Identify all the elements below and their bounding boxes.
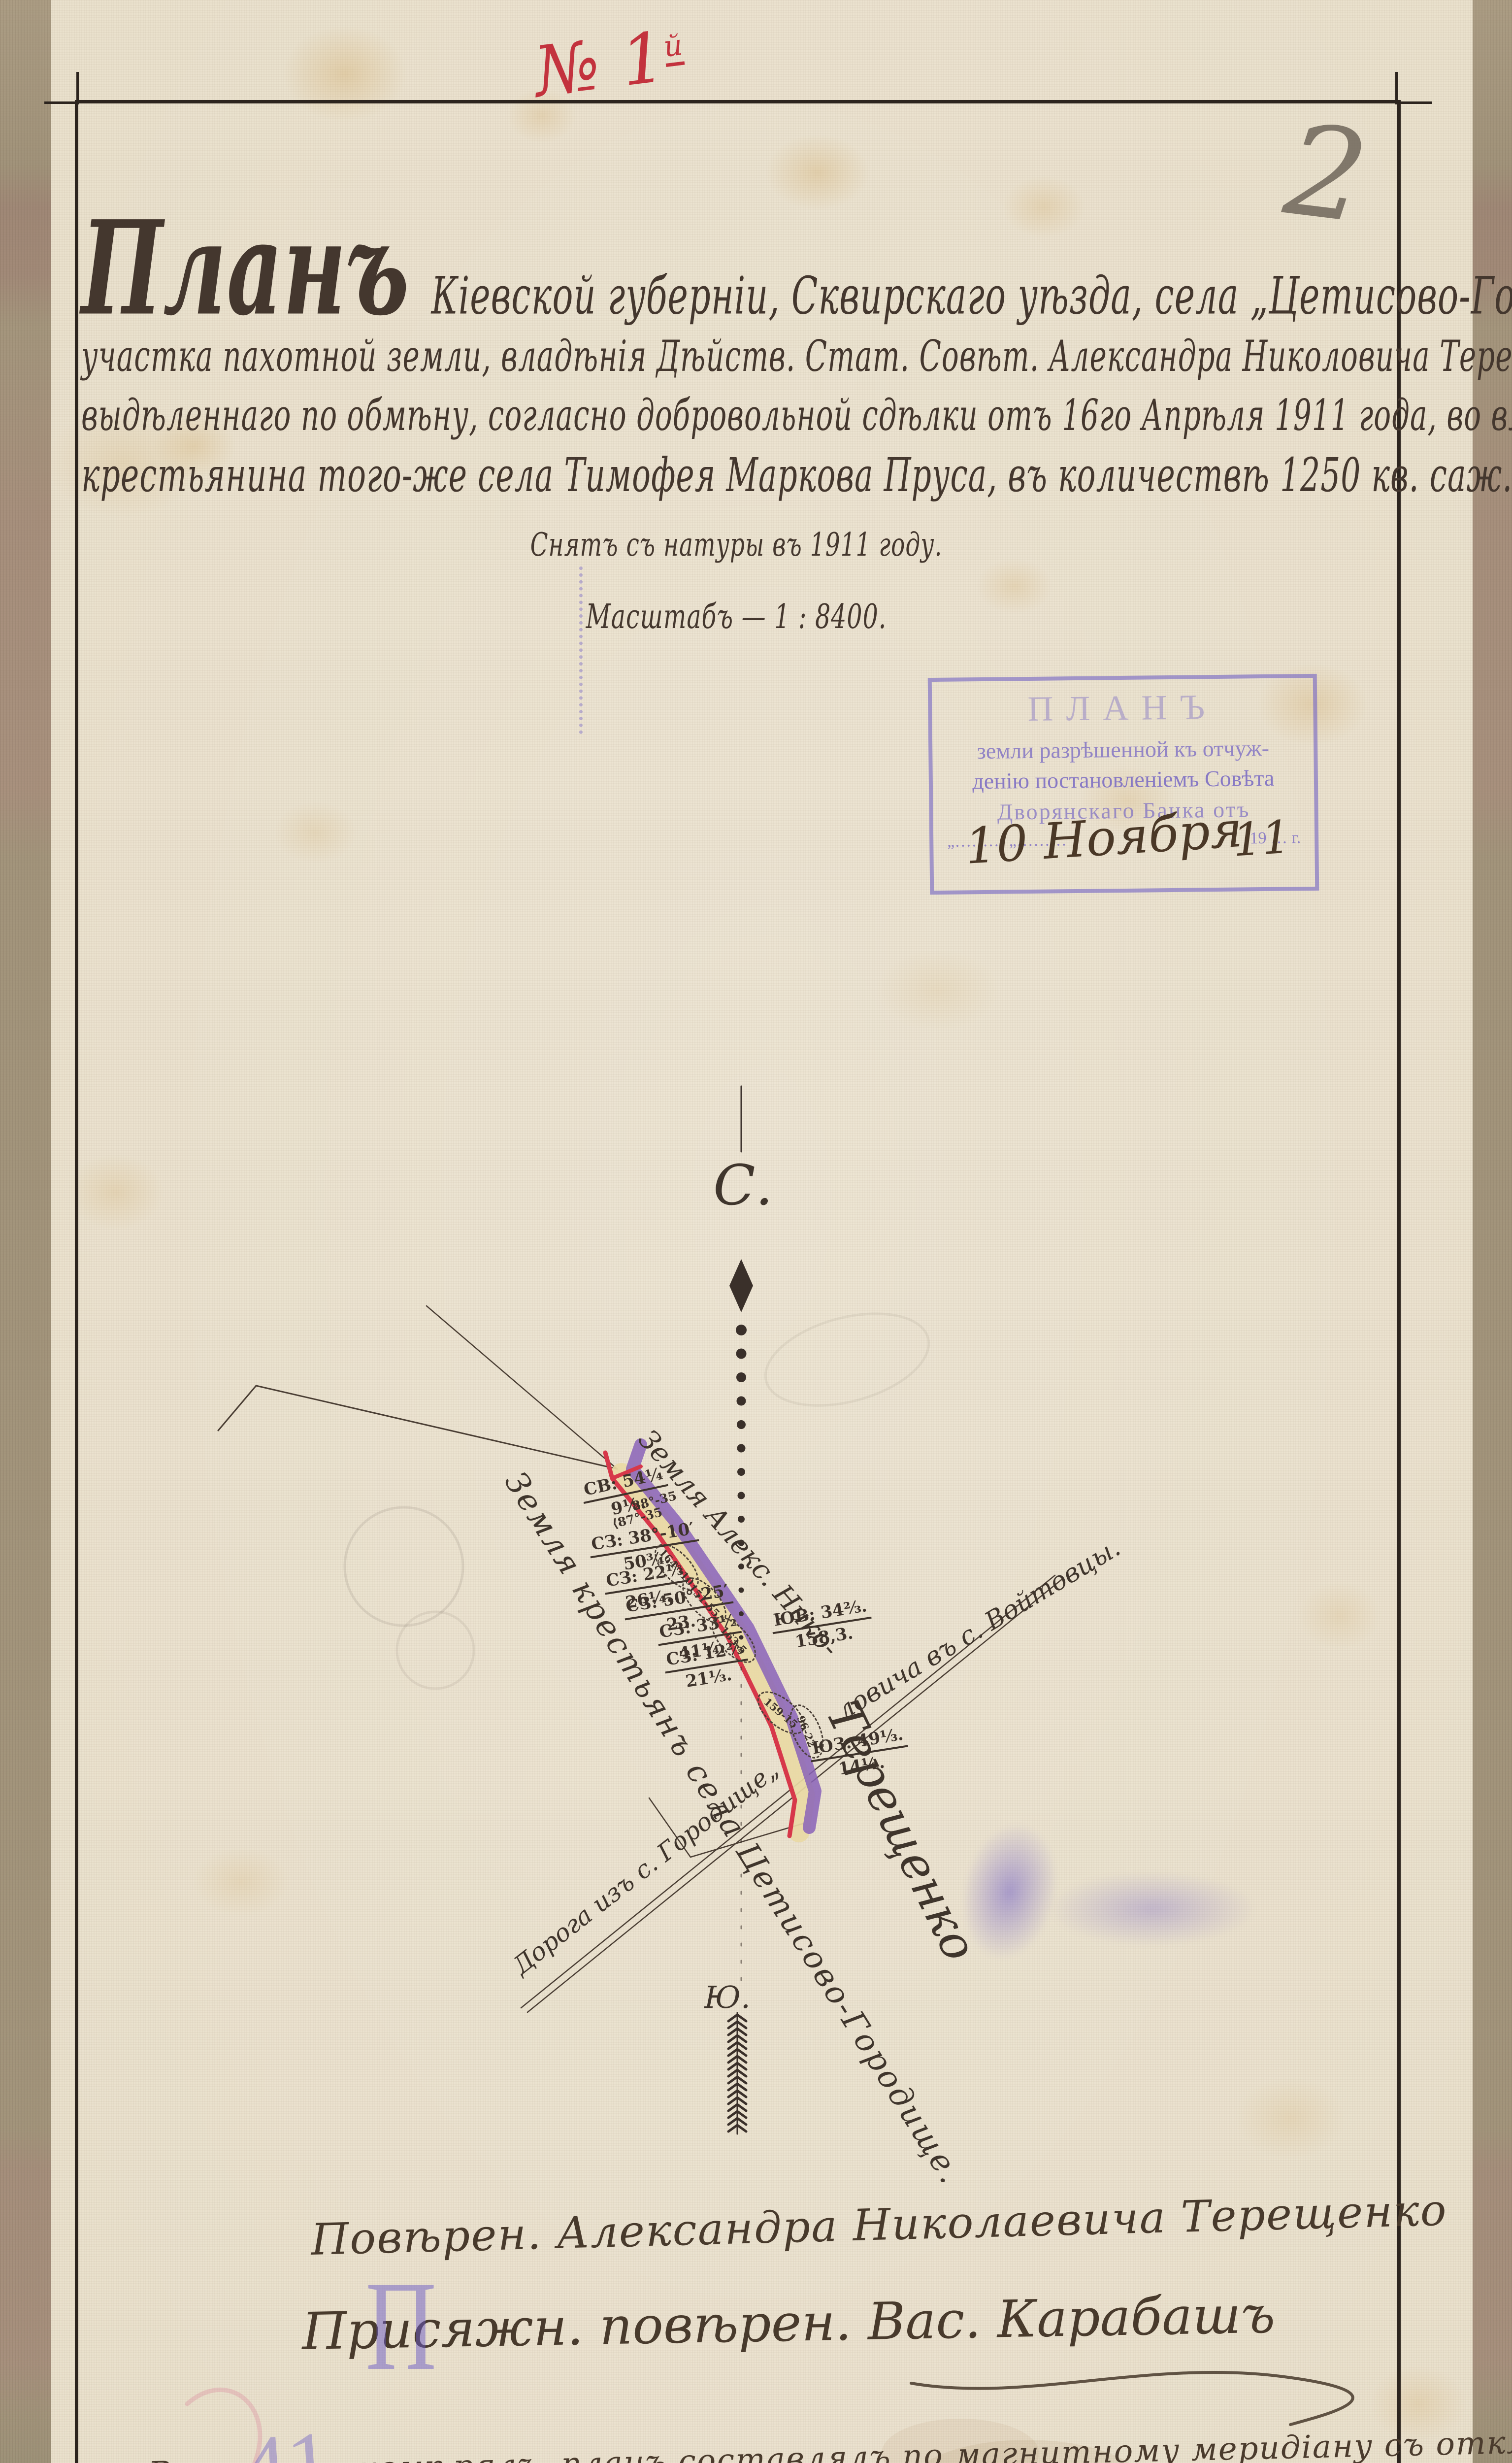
title-line-3: выдѣленнаго по обмѣну, согласно добровол… [81,390,1391,440]
title-line-2: участка пахотной земли, владѣнія Дѣйств.… [81,331,1391,381]
south-label: Ю. [704,1979,751,2015]
frame-tick [44,101,79,104]
backing-cloth-left-edge [0,0,51,2463]
north-label: С. [713,1154,773,1218]
stamp-year-suffix: г. [1291,829,1301,847]
stamp-line-2: земли разрѣшенной къ отчуж- [932,734,1314,765]
stamp-line-1: ПЛАНЪ [932,686,1314,731]
archival-number-text: № 1 [530,17,670,113]
title-line-1: ПланъКіевской губерніи, Сквирскаго уѣзда… [81,193,1391,345]
frame-tick [1398,101,1432,104]
station-number-text: 96-22 [795,1714,819,1749]
survey-note: Снятъ съ натуры въ 1911 году. [81,526,1391,564]
title-line-1-rest: Кіевской губерніи, Сквирскаго уѣзда, сел… [431,266,1512,326]
nobility-bank-stamp: ПЛАНЪ земли разрѣшенной къ отчуж- денію … [928,674,1319,895]
title-line-4: крестьянина того-же села Тимофея Маркова… [81,448,1391,502]
handwritten-stamp-year: 11 [1231,810,1292,866]
scanned-survey-plan: № 1й 2 ПланъКіевской губерніи, Сквирскаг… [0,0,1512,2463]
stamp-line-3: денію постановленіемъ Совѣта [933,765,1315,795]
frame-tick [76,72,79,104]
title-word-plan: Планъ [81,193,410,345]
violet-mark-letter: П [365,2253,436,2400]
frame-tick [1395,72,1398,104]
scale-note: Масштабъ — 1 : 8400. [81,597,1391,636]
